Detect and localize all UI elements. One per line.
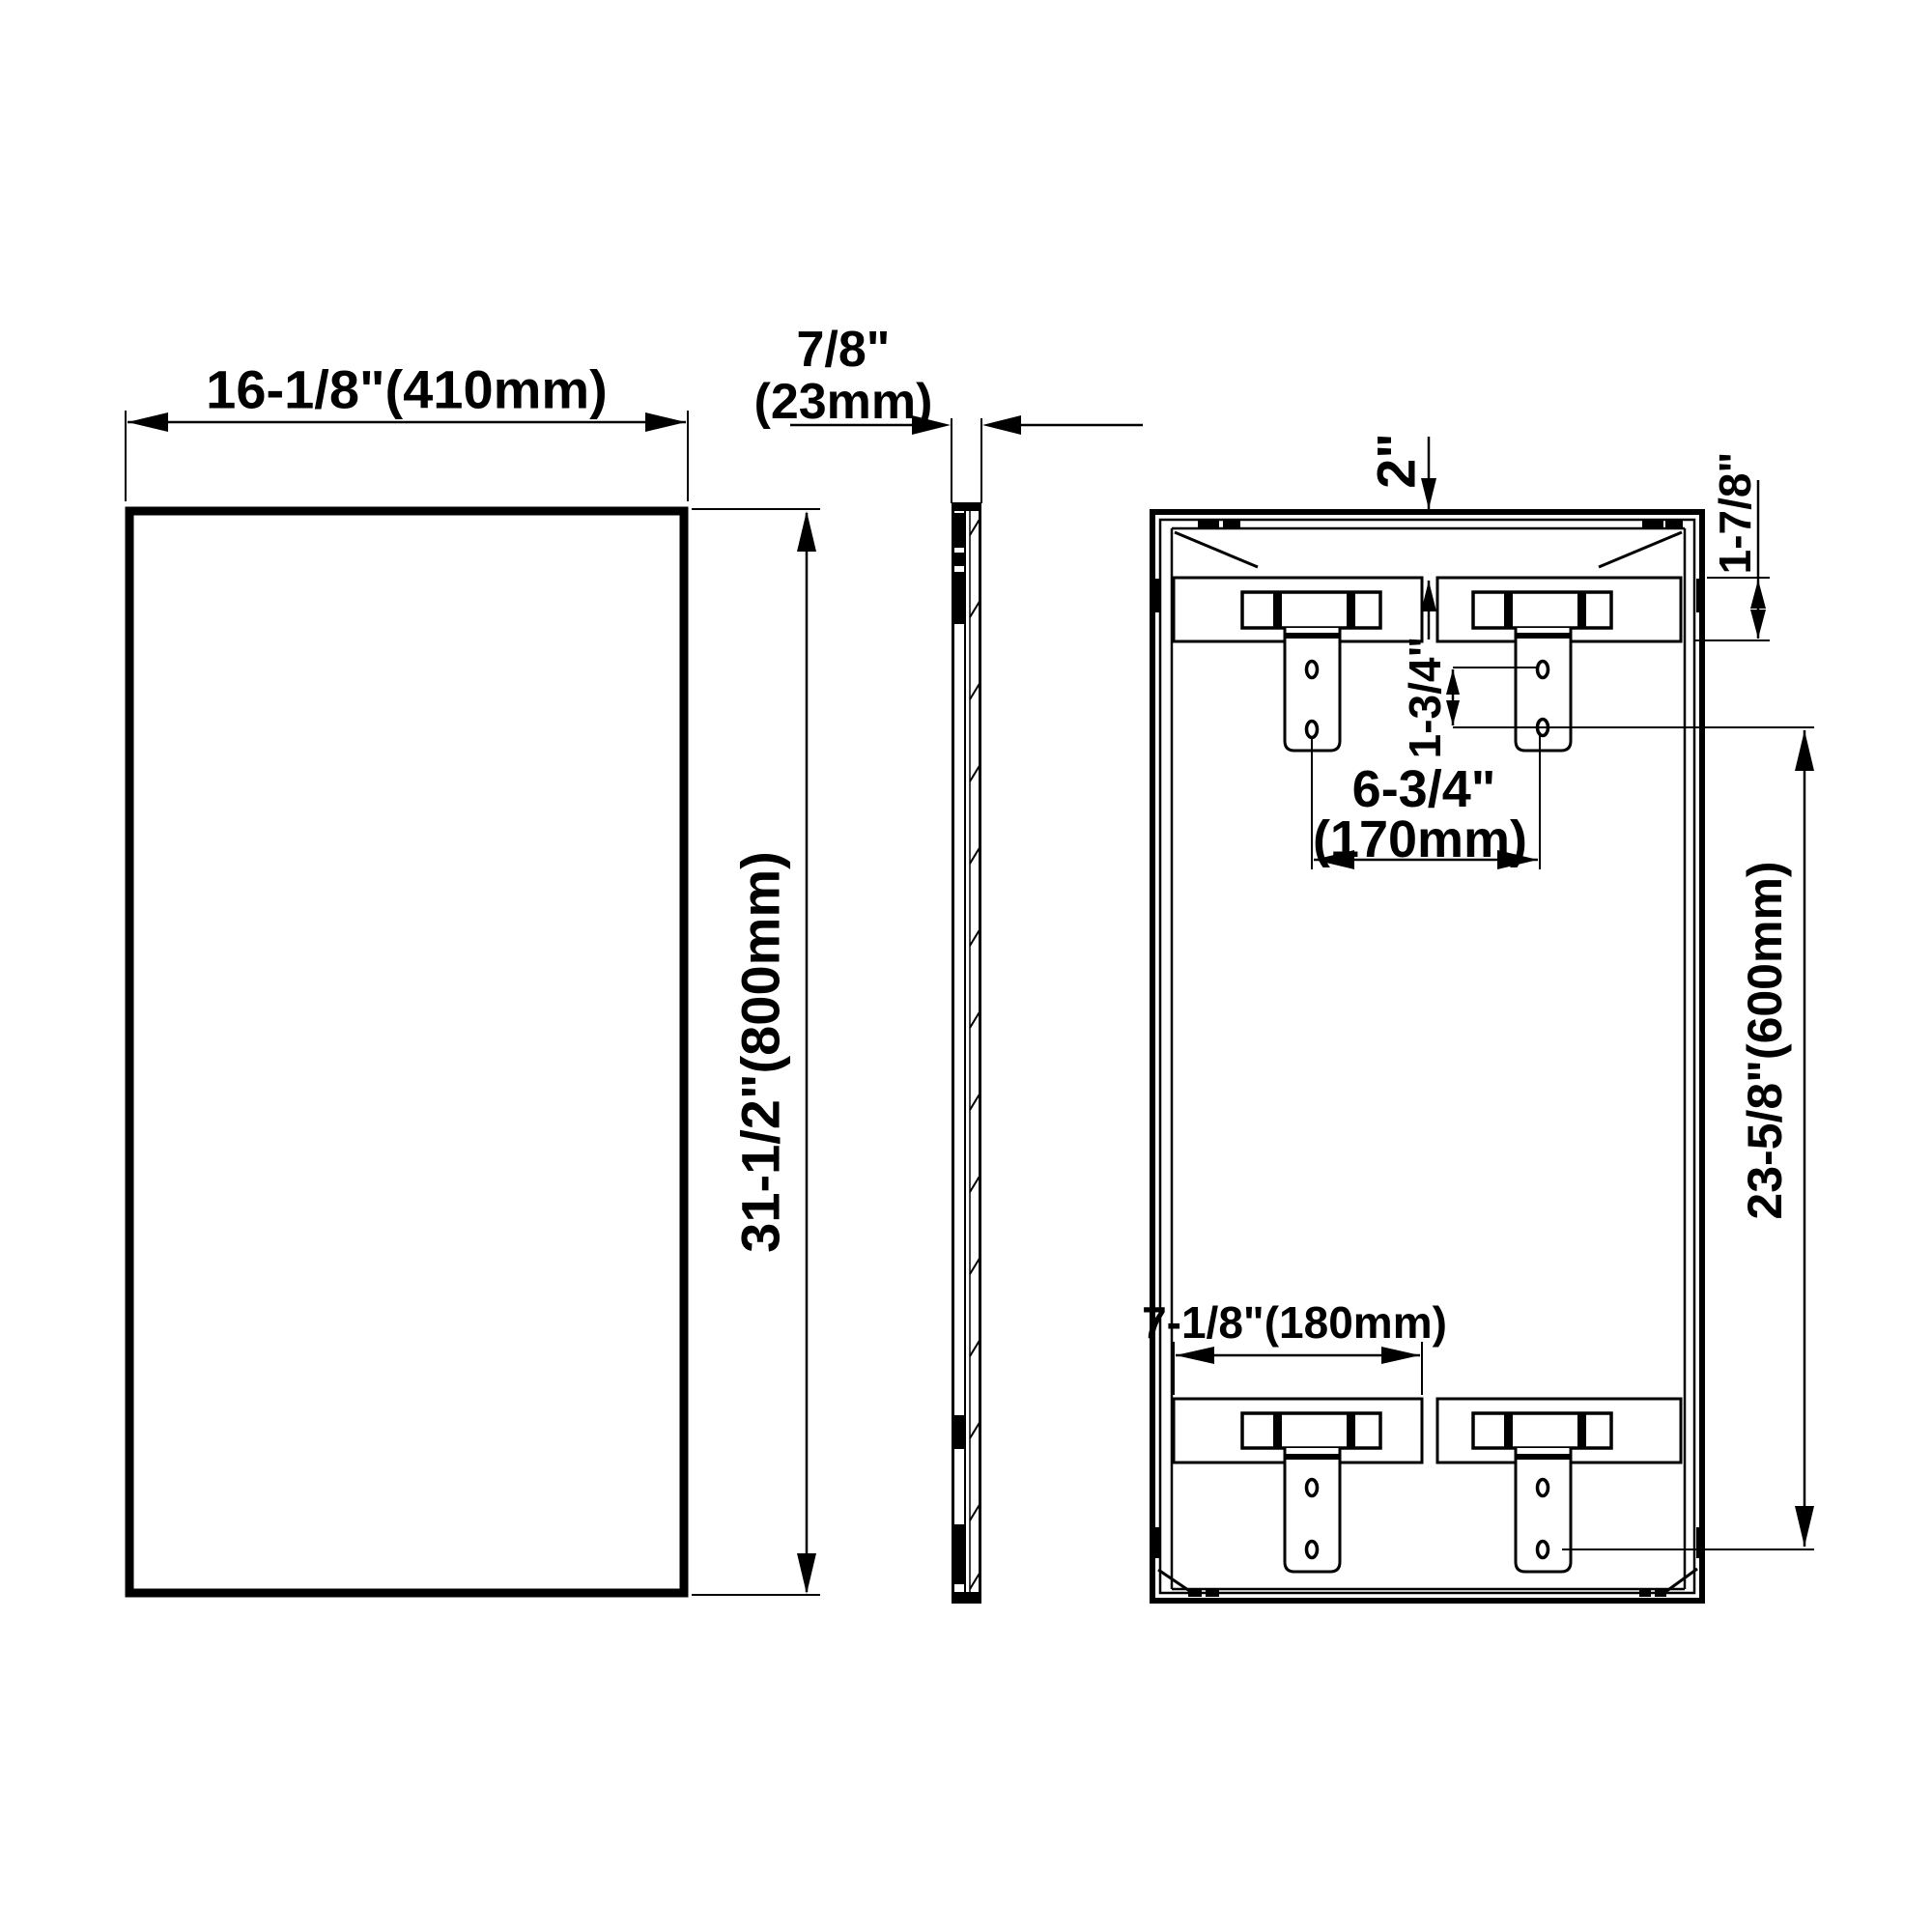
- side-view: [952, 502, 981, 1603]
- bracket-height-label: 1-7/8": [1710, 452, 1760, 575]
- front-height-label: 31-1/2"(800mm): [730, 851, 791, 1253]
- keyhole-slot: [1538, 1542, 1548, 1558]
- bracket-slide: [1242, 1413, 1380, 1448]
- technical-drawing-canvas: 16-1/8"(410mm) 31-1/2"(800mm): [0, 0, 1932, 1932]
- keyhole-slot: [1307, 722, 1318, 738]
- keyhole-slot: [1307, 662, 1318, 678]
- arrow-left-icon: [982, 415, 1021, 435]
- keyhole-slot: [1307, 1542, 1318, 1558]
- front-view: [129, 511, 684, 1593]
- side-depth-dimension: 7/8" (23mm): [754, 322, 1143, 503]
- front-height-dimension: 31-1/2"(800mm): [692, 509, 820, 1595]
- arrow-down-icon: [1795, 1506, 1814, 1547]
- front-width-label: 16-1/8"(410mm): [206, 359, 608, 420]
- top-bracket-spacing-label-in: 6-3/4": [1352, 760, 1496, 818]
- keyhole-slot: [1538, 662, 1548, 678]
- mounting-height-label: 23-5/8"(600mm): [1738, 861, 1792, 1219]
- bottom-bracket-width-label: 7-1/8"(180mm): [1142, 1297, 1447, 1348]
- arrow-up-icon: [797, 511, 816, 552]
- top-bracket-spacing-label-mm: (170mm): [1313, 810, 1527, 868]
- bracket-slide: [1242, 592, 1380, 628]
- keyhole-slot: [1307, 1480, 1318, 1496]
- arrow-down-icon: [797, 1553, 816, 1594]
- arrow-left-icon: [128, 412, 168, 432]
- keyhole-slot: [1538, 1480, 1548, 1496]
- top-offset-label: 2": [1366, 433, 1427, 489]
- arrow-down-icon: [1750, 610, 1766, 639]
- arrow-up-icon: [1750, 580, 1766, 609]
- side-depth-label-in: 7/8": [797, 322, 891, 378]
- arrow-right-icon: [645, 412, 686, 432]
- bracket-slide: [1473, 1413, 1611, 1448]
- mirror-front-panel: [129, 511, 684, 1593]
- front-width-dimension: 16-1/8"(410mm): [126, 359, 688, 502]
- side-depth-label-mm: (23mm): [754, 374, 933, 430]
- bracket-slide: [1473, 592, 1611, 628]
- bracket-height-dimension: 1-7/8": [1695, 452, 1770, 640]
- technical-drawing-page: 16-1/8"(410mm) 31-1/2"(800mm): [0, 0, 1932, 1932]
- arrow-up-icon: [1795, 730, 1814, 771]
- hole-spacing-label: 1-3/4": [1400, 637, 1450, 759]
